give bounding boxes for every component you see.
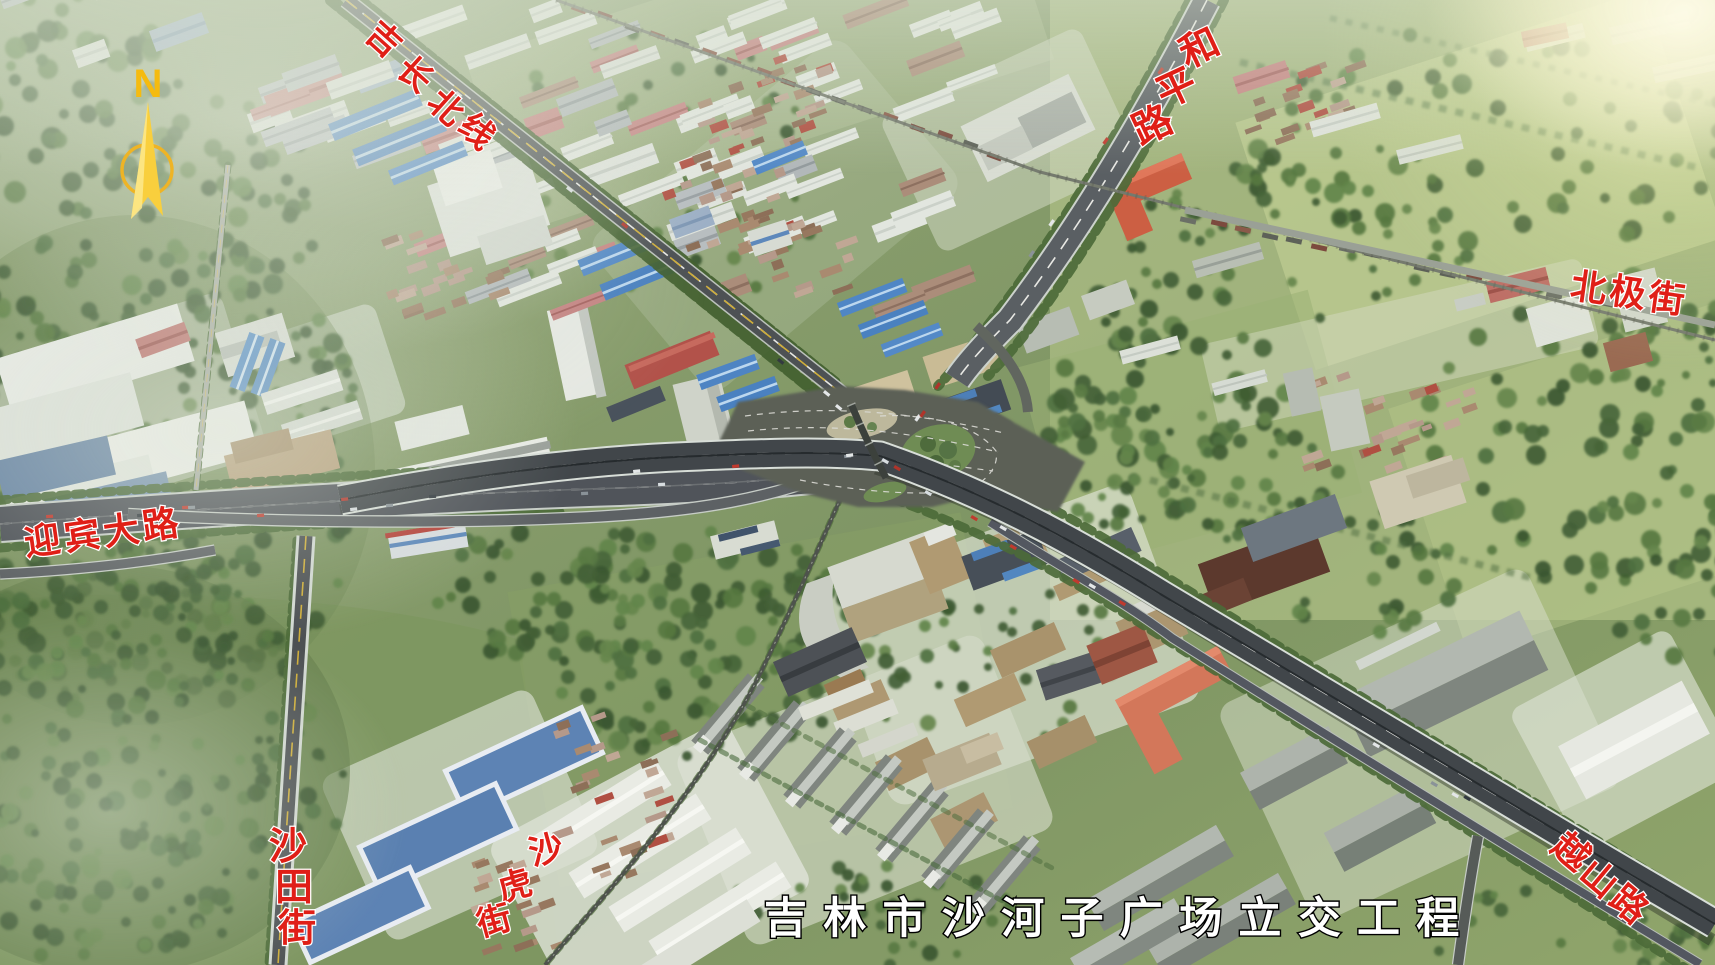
svg-text:田: 田: [275, 867, 313, 909]
svg-text:迎: 迎: [22, 518, 63, 564]
svg-text:街: 街: [277, 908, 316, 950]
svg-text:极: 极: [1607, 270, 1648, 316]
svg-text:宾: 宾: [62, 513, 103, 559]
svg-text:吉林市沙河子广场立交工程: 吉林市沙河子广场立交工程: [764, 895, 1476, 943]
svg-text:路: 路: [140, 502, 182, 548]
svg-text:北: 北: [1568, 265, 1609, 311]
svg-text:大: 大: [101, 508, 142, 554]
svg-text:沙: 沙: [269, 826, 307, 868]
svg-text:街: 街: [1645, 276, 1687, 322]
svg-text:N: N: [134, 62, 163, 106]
